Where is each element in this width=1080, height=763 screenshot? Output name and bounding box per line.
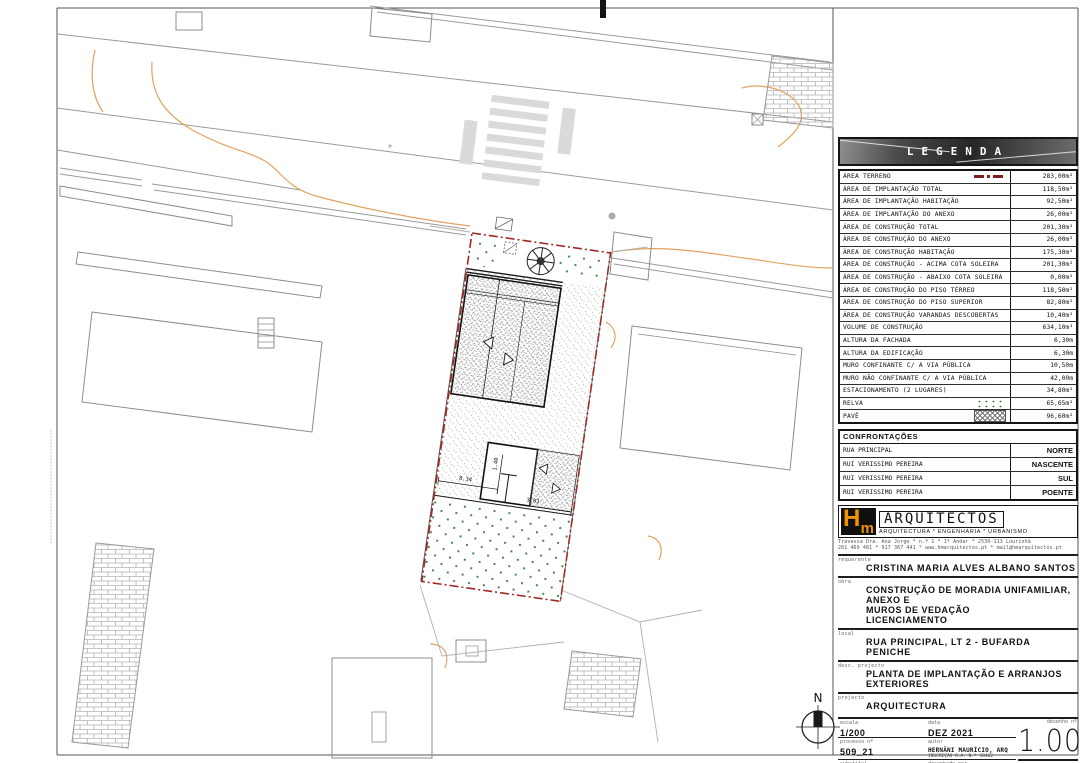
logo-letter-m: m — [861, 520, 874, 537]
confrontations-title: CONFRONTAÇÕES — [840, 431, 1076, 444]
legend-row-label: ÁREA DE CONSTRUÇÃO DO PISO SUPERIOR — [840, 297, 1010, 309]
legend-row-label: ÁREA DE CONSTRUÇÃO VARANDAS DESCOBERTAS — [840, 310, 1010, 322]
firm-address: Travessa Dra. Ana Jorge * n.º 1 * 1º And… — [838, 539, 1078, 552]
legend-row-value: 6,30m — [1010, 335, 1076, 347]
confrontation-direction: NORTE — [1010, 444, 1076, 457]
local-line1: RUA PRINCIPAL, LT 2 - BUFARDA — [838, 637, 1078, 647]
legend-row: ÁREA DE CONSTRUÇÃO VARANDAS DESCOBERTAS … — [840, 310, 1076, 323]
legend-row-label: ÁREA DE IMPLANTAÇÃO DO ANEXO — [840, 209, 1010, 221]
legend-row-value: 201,30m² — [1010, 259, 1076, 271]
legend-row: VOLUME DE CONSTRUÇÃO 634,10m³ — [840, 322, 1076, 335]
legend-row: ÁREA DE CONSTRUÇÃO - ACIMA COTA SOLEIRA … — [840, 259, 1076, 272]
legend-row-symbol — [974, 410, 1006, 422]
drawing-sheet: 8.34 3.01 1.40 N LEGENDA — [0, 0, 1080, 763]
desenho-value: 1.00 — [1018, 725, 1078, 759]
confrontation-row: RUI VERISSIMO PEREIRA SUL — [840, 472, 1076, 486]
legend-title: LEGENDA — [838, 137, 1078, 166]
legend-row-symbol — [974, 175, 1006, 178]
firm-address-line2: 261 469 481 * 917 367 441 * www.hmarquit… — [838, 545, 1078, 552]
confrontation-label: RUI VERISSIMO PEREIRA — [840, 486, 1010, 499]
legend-row-value: 92,50m² — [1010, 196, 1076, 208]
fold-mark — [600, 0, 606, 18]
legend-row: ÁREA DE CONSTRUÇÃO TOTAL 201,30m² — [840, 221, 1076, 234]
legend-row-label: MURO CONFINANTE C/ A VIA PÚBLICA — [840, 360, 1010, 372]
legend-row: RELVA 65,65m² — [840, 398, 1076, 411]
logo-letter-h: H — [843, 505, 860, 533]
firm-tagline: ARQUITECTURA * ENGENHARIA * URBANISMO — [879, 529, 1077, 535]
driveway-marker — [495, 217, 513, 231]
title-panel: LEGENDA ÁREA TERRENO 283,00m² ÁREA DE IM… — [838, 0, 1078, 763]
legend-row-value: 26,00m² — [1010, 209, 1076, 221]
desc-section: desc. projecto PLANTA DE IMPLANTAÇÃO E A… — [838, 660, 1078, 692]
neighbor-buildings — [60, 8, 802, 758]
legend-row: ÁREA DE CONSTRUÇÃO DO PISO SUPERIOR 82,8… — [840, 297, 1076, 310]
legend-row-value: 96,60m² — [1010, 410, 1076, 422]
projecto-section: projecto ARQUITECTURA — [838, 692, 1078, 717]
legend-row-value: 634,10m³ — [1010, 322, 1076, 334]
legend-row-value: 82,80m² — [1010, 297, 1076, 309]
local-section: local RUA PRINCIPAL, LT 2 - BUFARDA PENI… — [838, 628, 1078, 660]
legend-row-label: RELVA — [840, 398, 976, 410]
legend-row: ALTURA DA FACHADA 6,30m — [840, 335, 1076, 348]
hm-logo-icon: H m — [841, 508, 876, 535]
legend-row: ÁREA DE IMPLANTAÇÃO TOTAL 118,50m² — [840, 184, 1076, 197]
confrontation-row: RUA PRINCIPAL NORTE — [840, 444, 1076, 458]
desc-value: PLANTA DE IMPLANTAÇÃO E ARRANJOS EXTERIO… — [838, 669, 1078, 689]
confrontation-label: RUI VERISSIMO PEREIRA — [840, 472, 1010, 485]
legend-row: ÁREA DE CONSTRUÇÃO HABITAÇÃO 175,30m² — [840, 247, 1076, 260]
confrontation-label: RUA PRINCIPAL — [840, 444, 1010, 457]
titleblock-grid: escala 1/200 data DEZ 2021 processo nº 5… — [838, 717, 1078, 763]
legend-row: MURO NÃO CONFINANTE C/ A VIA PÚBLICA 42,… — [840, 373, 1076, 386]
obra-section: obra CONSTRUÇÃO DE MORADIA UNIFAMILIAR, … — [838, 576, 1078, 628]
projecto-value: ARQUITECTURA — [838, 701, 1078, 711]
legend-row-label: ÁREA DE IMPLANTAÇÃO TOTAL — [840, 184, 1010, 196]
escala-label: escala — [840, 720, 866, 726]
legend-row: ÁREA DE CONSTRUÇÃO DO PISO TÉRREO 118,50… — [840, 284, 1076, 297]
legend-row-label: ÁREA DE CONSTRUÇÃO DO ANEXO — [840, 234, 1010, 246]
legend-row-label: ÁREA DE CONSTRUÇÃO TOTAL — [840, 221, 1010, 233]
site-lot: 8.34 3.01 1.40 — [421, 233, 611, 602]
legend-table: ÁREA TERRENO 283,00m² ÁREA DE IMPLANTAÇÃ… — [838, 169, 1078, 424]
autor-value: HERNÂNI MAURÍCIO, ARQ — [928, 747, 1008, 754]
legend-row-value: 26,00m² — [1010, 234, 1076, 246]
legend-row-value: 118,50m² — [1010, 184, 1076, 196]
legend-row-label: MURO NÃO CONFINANTE C/ A VIA PÚBLICA — [840, 373, 1010, 385]
legend-row-value: 65,65m² — [1010, 398, 1076, 410]
confrontation-direction: SUL — [1010, 472, 1076, 485]
legend-row-label: ÁREA DE IMPLANTAÇÃO HABITAÇÃO — [840, 196, 1010, 208]
escala-value: 1/200 — [840, 728, 866, 738]
requerente-section: requerente CRISTINA MARIA ALVES ALBANO S… — [838, 554, 1078, 576]
legend-row-value: 34,80m² — [1010, 385, 1076, 397]
local-line2: PENICHE — [838, 647, 1078, 657]
legend-row: ÁREA DE CONSTRUÇÃO DO ANEXO 26,00m² — [840, 234, 1076, 247]
legend-row: ÁREA DE IMPLANTAÇÃO HABITAÇÃO 92,50m² — [840, 196, 1076, 209]
confrontation-row: RUI VERISSIMO PEREIRA NASCENTE — [840, 458, 1076, 472]
legend-row-value: 42,00m — [1010, 373, 1076, 385]
confrontations-table: CONFRONTAÇÕES RUA PRINCIPAL NORTE RUI VE… — [838, 429, 1078, 501]
legend-row-value: 175,30m² — [1010, 247, 1076, 259]
legend-row-value: 6,30m — [1010, 347, 1076, 359]
legend-row-value: 201,30m² — [1010, 221, 1076, 233]
house-footprint — [451, 275, 561, 407]
legend-row: ÁREA DE IMPLANTAÇÃO DO ANEXO 26,00m² — [840, 209, 1076, 222]
legend-row: ALTURA DA EDIFICAÇÃO 6,30m — [840, 347, 1076, 360]
legend-row-value: 118,50m² — [1010, 284, 1076, 296]
legend-row-value: 0,00m² — [1010, 272, 1076, 284]
legend-row: ÁREA TERRENO 283,00m² — [840, 171, 1076, 184]
legend-row-label: ÁREA DE CONSTRUÇÃO - ACIMA COTA SOLEIRA — [840, 259, 1010, 271]
confrontation-direction: NASCENTE — [1010, 458, 1076, 471]
north-label: N — [814, 691, 823, 705]
legend-row: ESTACIONAMENTO (2 LUGARES) 34,80m² — [840, 385, 1076, 398]
confrontation-label: RUI VERISSIMO PEREIRA — [840, 458, 1010, 471]
crosswalk — [458, 92, 577, 190]
legend-row-value: 10,50m — [1010, 360, 1076, 372]
legend-row-label: ÁREA DE CONSTRUÇÃO - ABAIXO COTA SOLEIRA — [840, 272, 1010, 284]
firm-logo-block: H m ARQUITECTOS ARQUITECTURA * ENGENHARI… — [838, 505, 1078, 538]
legend-row-value: 283,00m² — [1010, 171, 1076, 183]
legend-row: ÁREA DE CONSTRUÇÃO - ABAIXO COTA SOLEIRA… — [840, 272, 1076, 285]
legend-row: PAVÊ 96,60m² — [840, 410, 1076, 422]
confrontation-row: RUI VERISSIMO PEREIRA POENTE — [840, 486, 1076, 499]
obra-line2: MUROS DE VEDAÇÃO — [838, 605, 1078, 615]
obra-line3: LICENCIAMENTO — [838, 615, 1078, 625]
legend-row-label: PAVÊ — [840, 410, 974, 422]
data-label: data — [928, 720, 973, 726]
requerente-value: CRISTINA MARIA ALVES ALBANO SANTOS — [838, 563, 1078, 573]
drawing-number-cell: desenho nº 1.00 — [1018, 719, 1078, 761]
legend-row-label: VOLUME DE CONSTRUÇÃO — [840, 322, 1010, 334]
legend-row-label: ESTACIONAMENTO (2 LUGARES) — [840, 385, 1010, 397]
legend-row: MURO CONFINANTE C/ A VIA PÚBLICA 10,50m — [840, 360, 1076, 373]
legend-row-label: ÁREA DE CONSTRUÇÃO HABITAÇÃO — [840, 247, 1010, 259]
processo-label: processo nº — [840, 739, 874, 745]
legend-row-label: ALTURA DA EDIFICAÇÃO — [840, 347, 1010, 359]
data-value: DEZ 2021 — [928, 728, 973, 738]
confrontation-direction: POENTE — [1010, 486, 1076, 499]
processo-value: 509_21 — [840, 747, 874, 757]
firm-name: ARQUITECTOS — [879, 511, 1004, 528]
legend-row-label: ÁREA DE CONSTRUÇÃO DO PISO TÉRREO — [840, 284, 1010, 296]
legend-row-symbol — [976, 399, 1006, 408]
autor-label: autor — [928, 739, 1008, 745]
legend-row-value: 10,40m² — [1010, 310, 1076, 322]
autor-inscription: INSCRIÇÃO O.A. N.º 18462 — [928, 754, 1008, 759]
obra-line1: CONSTRUÇÃO DE MORADIA UNIFAMILIAR, ANEXO… — [838, 585, 1078, 605]
legend-row-label: ALTURA DA FACHADA — [840, 335, 1010, 347]
legend-row-label: ÁREA TERRENO — [840, 171, 974, 183]
